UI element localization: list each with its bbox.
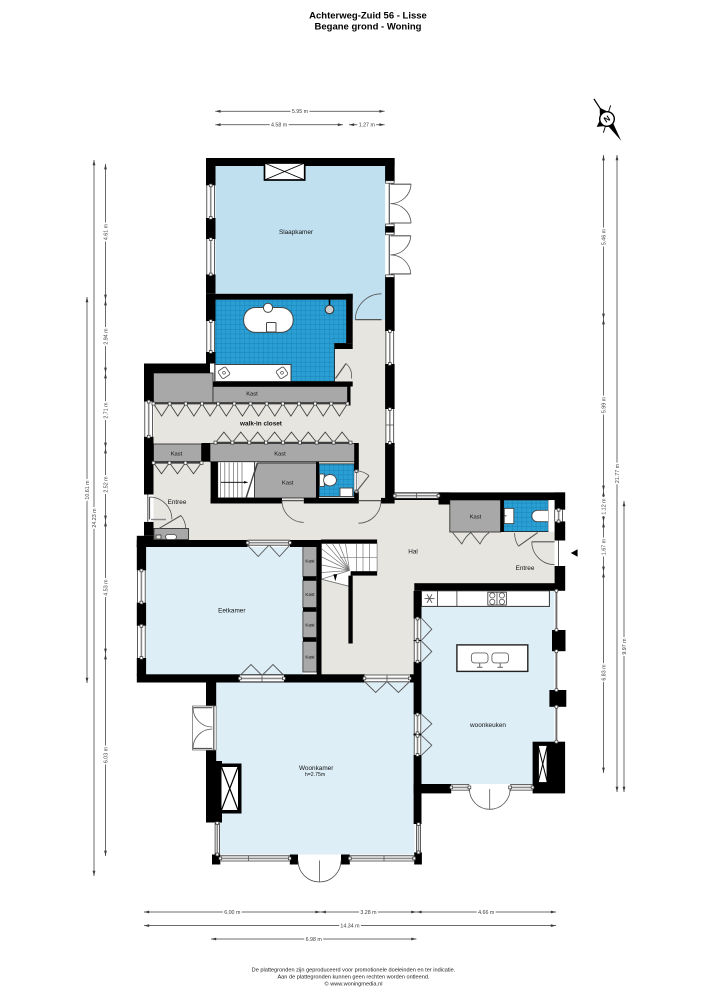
svg-text:4.58 m: 4.58 m — [271, 123, 288, 129]
svg-text:9.97 m: 9.97 m — [622, 638, 628, 655]
svg-text:6.98 m: 6.98 m — [306, 937, 323, 943]
svg-text:Kast: Kast — [305, 559, 315, 564]
svg-text:Hal: Hal — [408, 549, 418, 556]
svg-text:1.27 m: 1.27 m — [359, 123, 376, 129]
svg-text:2.52 m: 2.52 m — [103, 476, 109, 493]
svg-text:3.28 m: 3.28 m — [360, 910, 377, 916]
svg-text:walk-in closet: walk-in closet — [239, 421, 283, 428]
svg-text:Achterweg-Zuid 56 - Lisse: Achterweg-Zuid 56 - Lisse — [309, 11, 427, 22]
svg-text:4.53 m: 4.53 m — [103, 579, 109, 596]
svg-text:6.83 m: 6.83 m — [601, 664, 607, 681]
svg-text:Kast: Kast — [246, 392, 258, 398]
svg-text:4.66 m: 4.66 m — [478, 910, 495, 916]
svg-text:Aan de plattegronden kunnen ge: Aan de plattegronden kunnen geen rechten… — [277, 975, 430, 981]
svg-text:5.95 m: 5.95 m — [292, 109, 309, 115]
svg-text:De plattegronden zijn geproduc: De plattegronden zijn geproduceerd voor … — [252, 968, 456, 974]
svg-text:Woonkamer: Woonkamer — [299, 765, 334, 772]
svg-text:1.67 m: 1.67 m — [601, 538, 607, 555]
svg-text:5.46 m: 5.46 m — [601, 228, 607, 245]
svg-text:Kast: Kast — [274, 451, 286, 457]
svg-text:21.77 m: 21.77 m — [615, 463, 621, 483]
svg-text:6.00 m: 6.00 m — [224, 910, 241, 916]
svg-text:6.03 m: 6.03 m — [103, 746, 109, 763]
svg-text:Kast: Kast — [282, 480, 294, 486]
svg-text:14.34 m: 14.34 m — [340, 923, 360, 929]
svg-text:Kast: Kast — [305, 655, 315, 660]
svg-text:Kast: Kast — [470, 515, 482, 521]
svg-text:Kast: Kast — [305, 592, 315, 597]
svg-text:woonkeuken: woonkeuken — [469, 722, 506, 729]
svg-text:Entree: Entree — [516, 565, 535, 572]
svg-text:Slaapkamer: Slaapkamer — [279, 229, 314, 236]
svg-text:© www.woningmedia.nl: © www.woningmedia.nl — [325, 981, 383, 988]
svg-text:10.61 m: 10.61 m — [85, 480, 91, 500]
svg-text:5.99 m: 5.99 m — [601, 396, 607, 413]
svg-text:Begane grond - Woning: Begane grond - Woning — [315, 22, 422, 33]
svg-text:24.23 m: 24.23 m — [92, 508, 98, 528]
svg-text:Eetkamer: Eetkamer — [218, 608, 246, 615]
svg-text:1.12 m: 1.12 m — [601, 498, 607, 515]
svg-text:2.94 m: 2.94 m — [103, 328, 109, 345]
svg-text:Entree: Entree — [168, 499, 187, 506]
svg-text:h=2.75m: h=2.75m — [305, 772, 325, 778]
svg-text:Kast: Kast — [171, 451, 183, 457]
svg-text:Kast: Kast — [305, 623, 315, 628]
svg-text:4.61 m: 4.61 m — [103, 223, 109, 240]
svg-text:2.71 m: 2.71 m — [103, 402, 109, 419]
